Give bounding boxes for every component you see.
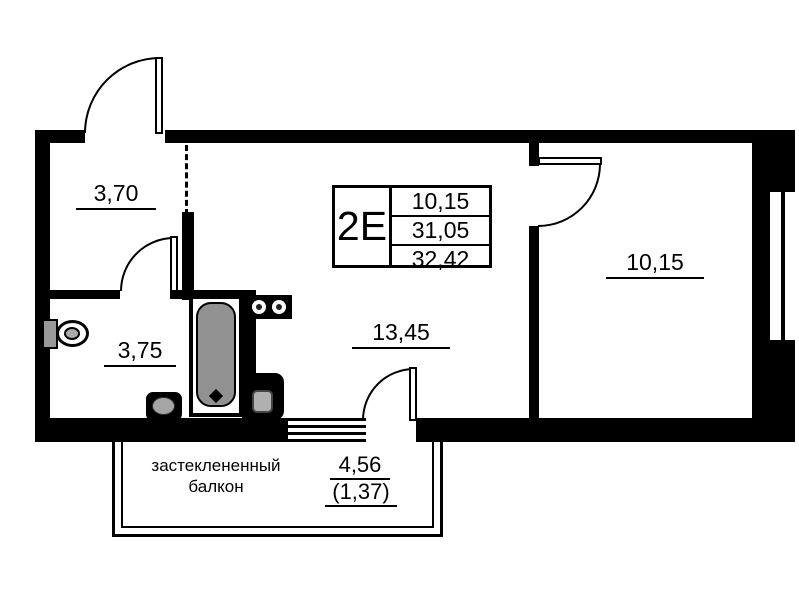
wall-top-main [165,130,795,143]
bedroom-door-arc [538,164,601,227]
bedroom-area-label: 10,15 [606,249,704,279]
cooktop [247,295,292,319]
entrance-door-leaf [155,57,163,134]
cooktop-burner-icon [252,300,266,314]
cooktop-burner-center [256,304,262,310]
wall-bottom-left [35,418,288,442]
bathroom-area-label: 3,75 [104,337,176,367]
bedroom-door-leaf [538,157,602,165]
window-right [770,192,795,340]
toilet-bowl-inner [64,327,80,340]
unit-legend-row: 31,05 [392,217,489,246]
unit-type-label: 2E [335,188,392,265]
unit-legend-row: 32,42 [392,246,489,273]
wall-hallway-partition [182,212,194,300]
window-balcony-line [288,425,366,428]
wall-bottom-right [416,418,795,442]
bathtub [189,295,243,417]
bathtub-rim [193,299,239,413]
window-balcony-line [288,432,366,435]
floor-plan: застеклененный балкон 4,56 (1,37) 3,70 3… [0,0,799,600]
unit-legend-row: 10,15 [392,188,489,217]
hallway-area-label: 3,70 [76,180,156,210]
cooktop-burner-icon [272,300,286,314]
window-right-mullion [781,192,785,340]
balcony-area-secondary-label: (1,37) [325,479,397,507]
bathroom-door-leaf [170,236,178,292]
balcony-area-label: 4,56 [330,452,390,480]
wall-left-exterior [35,130,50,442]
unit-legend-values: 10,15 31,05 32,42 [392,188,489,265]
window-balcony [288,418,366,442]
wall-partition-bedroom [529,226,539,442]
window-balcony-line [288,418,366,421]
kitchen-sink-bowl [252,390,273,413]
wall-bathroom-top-left [35,290,120,299]
unit-legend-table: 2E 10,15 31,05 32,42 [332,185,492,268]
balcony-name-line1: застеклененный [140,455,292,476]
balcony-door-leaf [409,367,417,421]
balcony-name-line2: балкон [140,476,292,497]
bathroom-door-arc [120,237,174,291]
washbasin-bowl [152,397,175,415]
washbasin [146,392,182,421]
living-area-label: 13,45 [352,319,450,349]
cooktop-burner-center [276,304,282,310]
kitchen-sink [245,373,284,420]
wall-opening-dashed-line [185,145,188,215]
balcony-name: застеклененный балкон [140,455,292,497]
balcony-door-arc [362,368,414,420]
entrance-door-arc [84,57,160,133]
